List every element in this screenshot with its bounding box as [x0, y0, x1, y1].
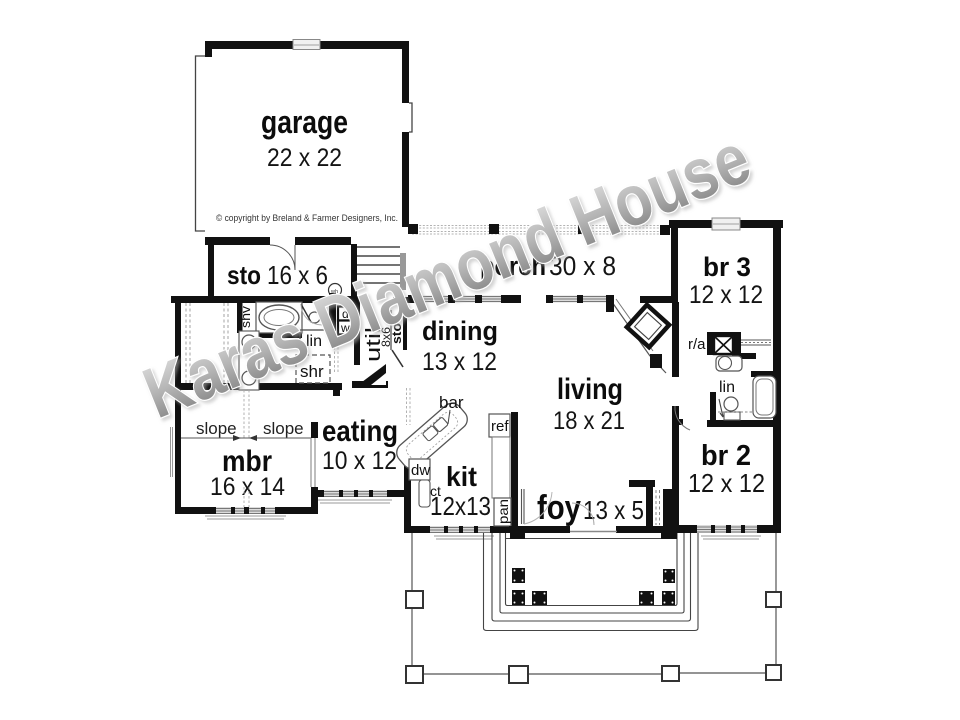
svg-text:22 x 22: 22 x 22: [267, 144, 342, 172]
svg-text:ref: ref: [491, 418, 509, 435]
svg-text:10 x 12: 10 x 12: [322, 447, 397, 475]
svg-text:bar: bar: [439, 393, 464, 412]
svg-text:18 x 21: 18 x 21: [553, 407, 625, 435]
svg-text:r/a: r/a: [688, 336, 706, 353]
svg-text:garage: garage: [261, 104, 348, 140]
svg-text:12 x 12: 12 x 12: [688, 468, 765, 498]
svg-text:living: living: [557, 373, 623, 406]
svg-text:kit: kit: [446, 461, 477, 492]
svg-text:eating: eating: [322, 415, 398, 448]
svg-text:lin: lin: [719, 379, 735, 396]
svg-text:br 3: br 3: [703, 252, 751, 282]
svg-text:sto: sto: [227, 260, 261, 290]
svg-text:dw: dw: [411, 462, 430, 479]
svg-text:13 x 12: 13 x 12: [422, 348, 497, 376]
svg-text:12 x 12: 12 x 12: [689, 281, 763, 309]
svg-text:ct: ct: [430, 483, 441, 499]
svg-text:16 x 14: 16 x 14: [210, 473, 285, 501]
svg-text:slope: slope: [263, 419, 304, 438]
svg-text:pan: pan: [495, 499, 511, 524]
svg-text:© copyright by Breland & Farm: © copyright by Breland & Farmer Designer…: [216, 213, 398, 223]
svg-text:slope: slope: [196, 419, 237, 438]
svg-text:foy: foy: [537, 489, 581, 527]
svg-text:13 x 5: 13 x 5: [583, 495, 644, 525]
